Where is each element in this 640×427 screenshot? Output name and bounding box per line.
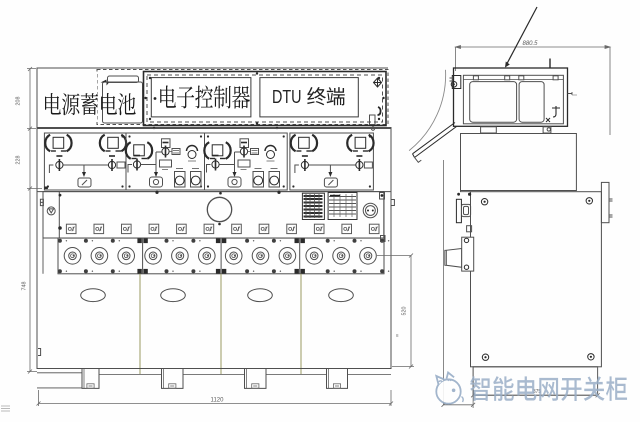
svg-text:880.5: 880.5 [522, 41, 538, 47]
svg-text:DTU: DTU [272, 86, 302, 107]
svg-text:748: 748 [22, 282, 28, 291]
svg-text:1120: 1120 [211, 398, 225, 404]
svg-text:208: 208 [16, 97, 22, 106]
svg-text:228: 228 [16, 156, 22, 165]
svg-text:520: 520 [402, 307, 408, 316]
